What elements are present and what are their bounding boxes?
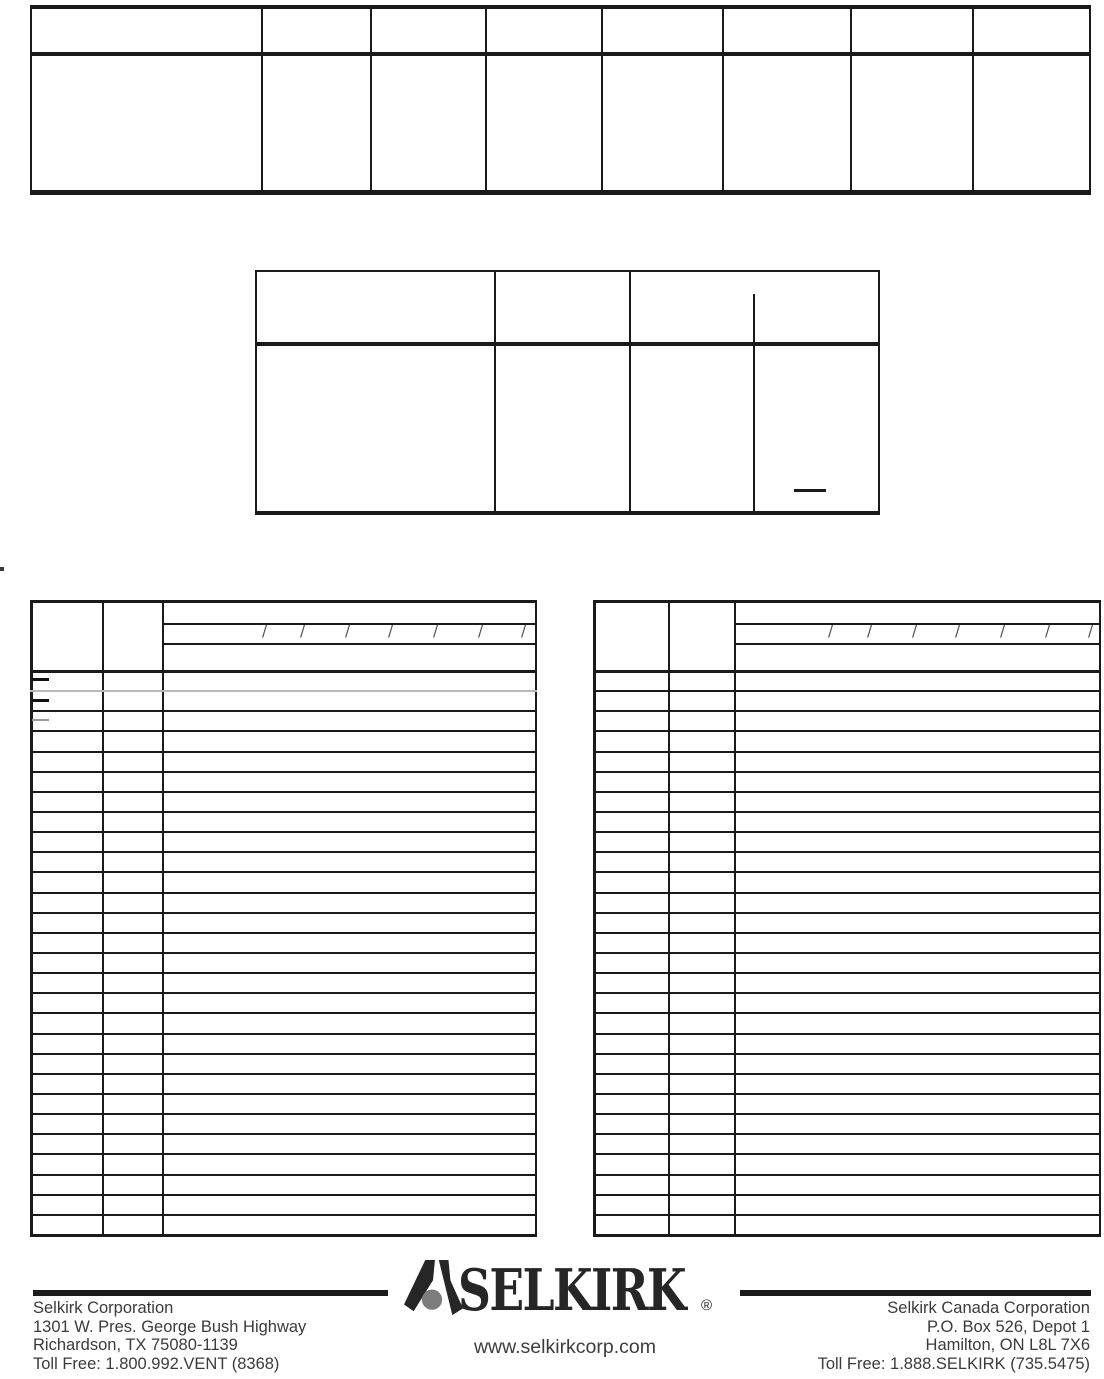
table-rule	[30, 5, 32, 195]
table-rule	[878, 270, 880, 515]
table-rule	[593, 892, 1101, 894]
table-rule	[593, 751, 1101, 753]
table-rule	[255, 270, 880, 272]
table-rule	[593, 1153, 1101, 1155]
table-rule	[593, 730, 1101, 732]
header-slash-mark: /	[1088, 624, 1093, 639]
table-rule	[30, 972, 537, 974]
table-rule	[30, 730, 537, 732]
table-rule	[593, 1093, 1101, 1095]
table-rule	[30, 1033, 537, 1035]
mid-table	[255, 270, 880, 515]
table-rule	[753, 294, 755, 515]
selkirk-logo-icon	[401, 1260, 465, 1318]
header-slash-mark: /	[388, 624, 393, 639]
table-rule	[261, 5, 263, 195]
table-rule	[162, 643, 537, 645]
table-rule	[30, 831, 537, 833]
table-rule	[794, 489, 826, 492]
us-address-line: 1301 W. Pres. George Bush Highway	[33, 1318, 306, 1337]
canada-address-line: P.O. Box 526, Depot 1	[818, 1318, 1090, 1337]
table-rule	[30, 851, 537, 853]
table-rule	[629, 270, 631, 515]
table-rule	[668, 600, 670, 1237]
header-slash-mark: /	[300, 624, 305, 639]
table-rule	[593, 1174, 1101, 1176]
table-rule	[30, 952, 537, 954]
table-rule	[1089, 5, 1091, 195]
table-rule	[30, 5, 1091, 9]
table-rule	[30, 771, 537, 773]
table-rule	[734, 600, 736, 1237]
footer-rule-left	[33, 1290, 388, 1296]
table-rule	[30, 190, 1091, 195]
table-rule	[593, 912, 1101, 914]
parts-table-left: ///////	[30, 600, 537, 1237]
header-slash-mark: /	[1045, 624, 1050, 639]
header-slash-mark: /	[262, 624, 267, 639]
table-rule	[593, 1053, 1101, 1055]
table-rule	[30, 892, 537, 894]
canada-address-line: Selkirk Canada Corporation	[818, 1299, 1090, 1318]
parts-table-right: ///////	[593, 600, 1101, 1237]
table-rule	[255, 270, 257, 515]
canada-address-line: Toll Free: 1.888.SELKIRK (735.5475)	[818, 1355, 1090, 1374]
table-rule	[30, 811, 537, 813]
table-rule	[255, 342, 880, 346]
table-rule	[593, 690, 1101, 692]
table-rule	[32, 719, 49, 721]
document-page: /////// /////// SELKIRK ® Selkirk Corpor…	[0, 0, 1104, 1379]
table-rule	[255, 511, 880, 515]
table-rule	[30, 1214, 537, 1216]
table-rule	[30, 912, 537, 914]
header-slash-mark: /	[828, 624, 833, 639]
header-slash-mark: /	[867, 624, 872, 639]
table-rule	[30, 992, 537, 994]
table-rule	[30, 1194, 537, 1196]
table-rule	[722, 5, 724, 195]
table-rule	[593, 1033, 1101, 1035]
header-slash-mark: /	[521, 624, 526, 639]
table-rule	[593, 851, 1101, 853]
table-rule	[593, 1073, 1101, 1075]
header-slash-mark: /	[912, 624, 917, 639]
header-slash-mark: /	[478, 624, 483, 639]
table-rule	[593, 972, 1101, 974]
header-slash-mark: /	[1000, 624, 1005, 639]
table-rule	[30, 600, 537, 603]
table-rule	[593, 811, 1101, 813]
table-rule	[30, 670, 537, 673]
table-rule	[32, 678, 49, 681]
table-rule	[593, 1012, 1101, 1014]
table-rule	[32, 699, 49, 702]
table-rule	[30, 1113, 537, 1115]
table-rule	[593, 670, 1101, 673]
us-address-line: Selkirk Corporation	[33, 1299, 306, 1318]
table-rule	[972, 5, 974, 195]
table-rule	[593, 932, 1101, 934]
table-rule	[30, 932, 537, 934]
table-rule	[593, 831, 1101, 833]
top-table	[30, 5, 1091, 195]
table-rule	[30, 1012, 537, 1014]
table-rule	[593, 1214, 1101, 1216]
stray-ink-speck	[0, 567, 4, 571]
header-slash-mark: /	[345, 624, 350, 639]
table-rule	[850, 5, 852, 195]
table-rule	[485, 5, 487, 195]
table-rule	[30, 1093, 537, 1095]
header-slash-mark: /	[433, 624, 438, 639]
table-rule	[30, 1174, 537, 1176]
table-rule	[593, 791, 1101, 793]
canada-office-address: Selkirk Canada Corporation P.O. Box 526,…	[818, 1299, 1090, 1374]
table-rule	[30, 751, 537, 753]
table-rule	[593, 771, 1101, 773]
table-rule	[535, 600, 537, 1237]
table-rule	[593, 992, 1101, 994]
table-rule	[30, 1073, 537, 1075]
table-rule	[734, 643, 1101, 645]
table-rule	[30, 52, 1091, 56]
table-rule	[1099, 600, 1101, 1237]
table-rule	[30, 600, 33, 1237]
table-rule	[593, 1113, 1101, 1115]
table-rule	[593, 1194, 1101, 1196]
table-rule	[30, 871, 537, 873]
table-rule	[30, 1234, 537, 1237]
table-rule	[30, 1133, 537, 1135]
table-rule	[593, 600, 596, 1237]
canada-address-line: Hamilton, ON L8L 7X6	[818, 1336, 1090, 1355]
table-rule	[30, 690, 537, 692]
selkirk-wordmark: SELKIRK	[458, 1257, 685, 1324]
footer-rule-right	[740, 1290, 1091, 1296]
table-rule	[30, 710, 537, 712]
table-rule	[593, 710, 1101, 712]
table-rule	[162, 600, 164, 1237]
table-rule	[601, 5, 603, 195]
table-rule	[102, 600, 104, 1237]
table-rule	[30, 1153, 537, 1155]
table-rule	[370, 5, 372, 195]
table-rule	[593, 1133, 1101, 1135]
table-rule	[30, 791, 537, 793]
table-rule	[593, 871, 1101, 873]
registered-trademark-symbol: ®	[701, 1297, 712, 1314]
table-rule	[30, 1053, 537, 1055]
table-rule	[494, 270, 496, 515]
table-rule	[593, 952, 1101, 954]
header-slash-mark: /	[955, 624, 960, 639]
